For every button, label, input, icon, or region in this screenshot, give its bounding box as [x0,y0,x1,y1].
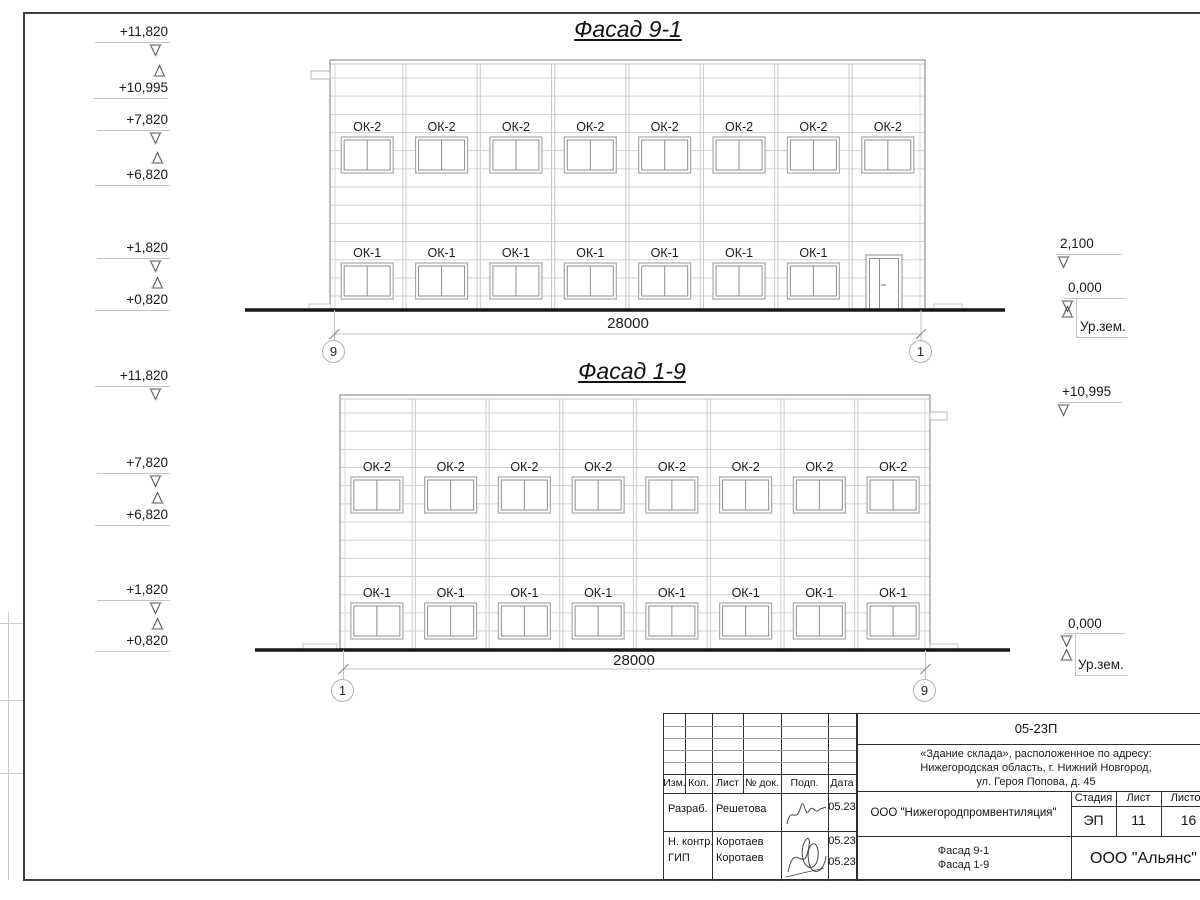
elevation-arrow-icon [150,491,165,504]
elevation-leader-line [1064,298,1126,299]
elevation-leader-line [1076,337,1128,338]
elevation-label: 2,100 [1060,236,1122,251]
tb-line [856,744,1200,745]
elevation-label: +10,995 [88,80,168,95]
title-block: Изм. Кол. Лист № док. Подп. Дата Разраб.… [663,713,1200,880]
elevation-leader-line [93,98,168,99]
elevation-leader-line [1075,675,1128,676]
elevation-label: +1,820 [88,240,168,255]
elevation-arrow-icon [1059,648,1074,661]
elevation-label: +11,820 [88,24,168,39]
tb-role-nkontr: Н. контр. [668,836,713,848]
elevation-label: +0,820 [88,633,168,648]
tb-name-gip: Коротаев [716,852,764,864]
tb-address-line3: ул. Героя Попова, д. 45 [856,775,1200,789]
tb-line [712,714,713,881]
elevation-arrow-icon [1059,635,1074,648]
elevation-leader-line [1075,633,1076,675]
tb-role-gip: ГИП [668,852,690,864]
elevation-label: +7,820 [88,112,168,127]
elevation-arrow-icon [150,617,165,630]
tb-col-ndok: № док. [743,774,781,793]
tb-date-razrab: 05.23 [828,800,856,816]
tb-content-line1: Фасад 9-1 [856,844,1071,858]
elevation-label: +11,820 [88,368,168,383]
elevation-arrow-icon [148,602,163,615]
tb-content: Фасад 9-1 Фасад 1-9 [856,844,1071,872]
elevation-leader-line [97,473,170,474]
elevation-label: +0,820 [88,292,168,307]
signature-gip [782,832,828,880]
elevation-label: Ур.зем. [1078,657,1140,672]
tb-project-address: «Здание склада», расположенное по адресу… [856,747,1200,789]
tb-sheets-value: 16 [1161,806,1200,836]
tb-org: ООО "Нижегородпромвентиляция" [856,791,1071,836]
tb-address-line1: «Здание склада», расположенное по адресу… [856,747,1200,761]
elevation-leader-line [95,386,170,387]
elevation-arrow-icon [1056,256,1071,269]
elevation-arrow-icon [148,44,163,57]
elevation-leader-line [1076,298,1077,337]
elevation-arrow-icon [148,475,163,488]
elevation-leader-line [97,258,170,259]
sheet: { "drawing": { "facades": [ { "title": "… [0,0,1200,900]
tb-sheet-value: 11 [1116,806,1161,836]
tb-col-izm: Изм. [662,774,687,793]
tb-sheet-label: Лист [1116,791,1161,806]
tb-date-gip: 05.23 [828,855,856,871]
elevation-label: 0,000 [1068,280,1130,295]
elevation-arrow-icon [1056,404,1071,417]
elevation-leader-line [95,42,170,43]
elevation-arrow-icon [150,276,165,289]
elevation-arrow-icon [1060,305,1075,318]
tb-stage-label: Стадия [1071,791,1116,806]
tb-col-podp: Подп. [781,774,828,793]
elevation-leader-line [1058,402,1122,403]
signature-razrab [782,794,828,831]
tb-name-nkontr: Коротаев [716,836,764,848]
elevation-arrow-icon [152,64,167,77]
tb-col-kol: Кол. [685,774,712,793]
elevation-arrow-icon [148,260,163,273]
tb-project-code: 05-23П [856,716,1200,743]
elevation-arrow-icon [148,132,163,145]
tb-company: ООО "Альянс" [1071,836,1200,881]
elevation-arrow-icon [148,388,163,401]
elevation-leader-line [1056,254,1122,255]
elevation-leader-line [95,651,170,652]
elevation-label: +6,820 [88,167,168,182]
elevation-label: Ур.зем. [1080,319,1142,334]
elevation-leader-line [97,600,170,601]
elevation-arrow-icon [150,151,165,164]
elevation-leader-line [95,185,170,186]
tb-sheets-label: Листов [1161,791,1200,806]
tb-stage-value: ЭП [1071,806,1116,836]
tb-date-nkontr: 05.23 [828,834,856,850]
tb-line [664,738,856,739]
tb-col-data: Дата [828,774,856,793]
elevation-label: +10,995 [1062,384,1124,399]
tb-content-line2: Фасад 1-9 [856,858,1071,872]
tb-name-razrab: Решетова [716,803,766,815]
elevation-leader-line [95,525,170,526]
tb-role-razrab: Разраб. [668,803,708,815]
elevation-leader-line [1064,633,1126,634]
tb-line [664,750,856,751]
tb-col-list: Лист [712,774,743,793]
tb-line [664,762,856,763]
elevation-leader-line [95,310,170,311]
tb-line [664,726,856,727]
elevation-label: 0,000 [1068,616,1130,631]
elevation-label: +6,820 [88,507,168,522]
tb-address-line2: Нижегородская область, г. Нижний Новгоро… [856,761,1200,775]
elevation-leader-line [97,130,170,131]
elevation-label: +1,820 [88,582,168,597]
elevation-label: +7,820 [88,455,168,470]
